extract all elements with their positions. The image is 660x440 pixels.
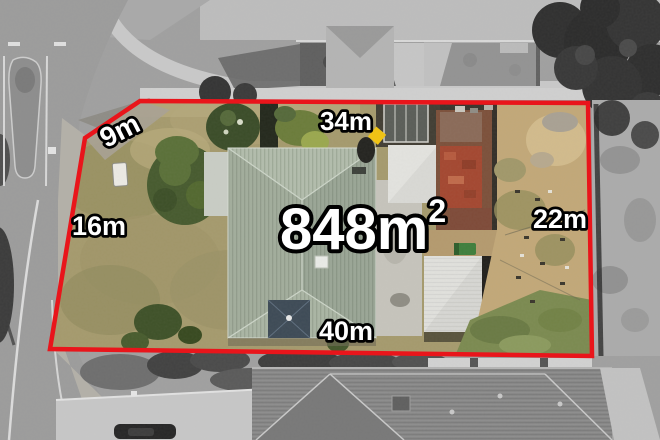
area-value: 848m [280, 197, 428, 262]
area-label: 848m2 [280, 193, 446, 262]
measurement-label-east: 22m [533, 204, 587, 234]
measurement-label-north: 34m [320, 106, 372, 136]
measurement-label-south: 40m [319, 316, 373, 346]
measurement-label-west: 16m [72, 211, 126, 241]
listing-aerial-photo: 9m 34m 16m 22m 40m 848m2 [0, 0, 660, 440]
aerial-scene: 9m 34m 16m 22m 40m 848m2 [0, 0, 660, 440]
area-superscript: 2 [428, 193, 446, 229]
